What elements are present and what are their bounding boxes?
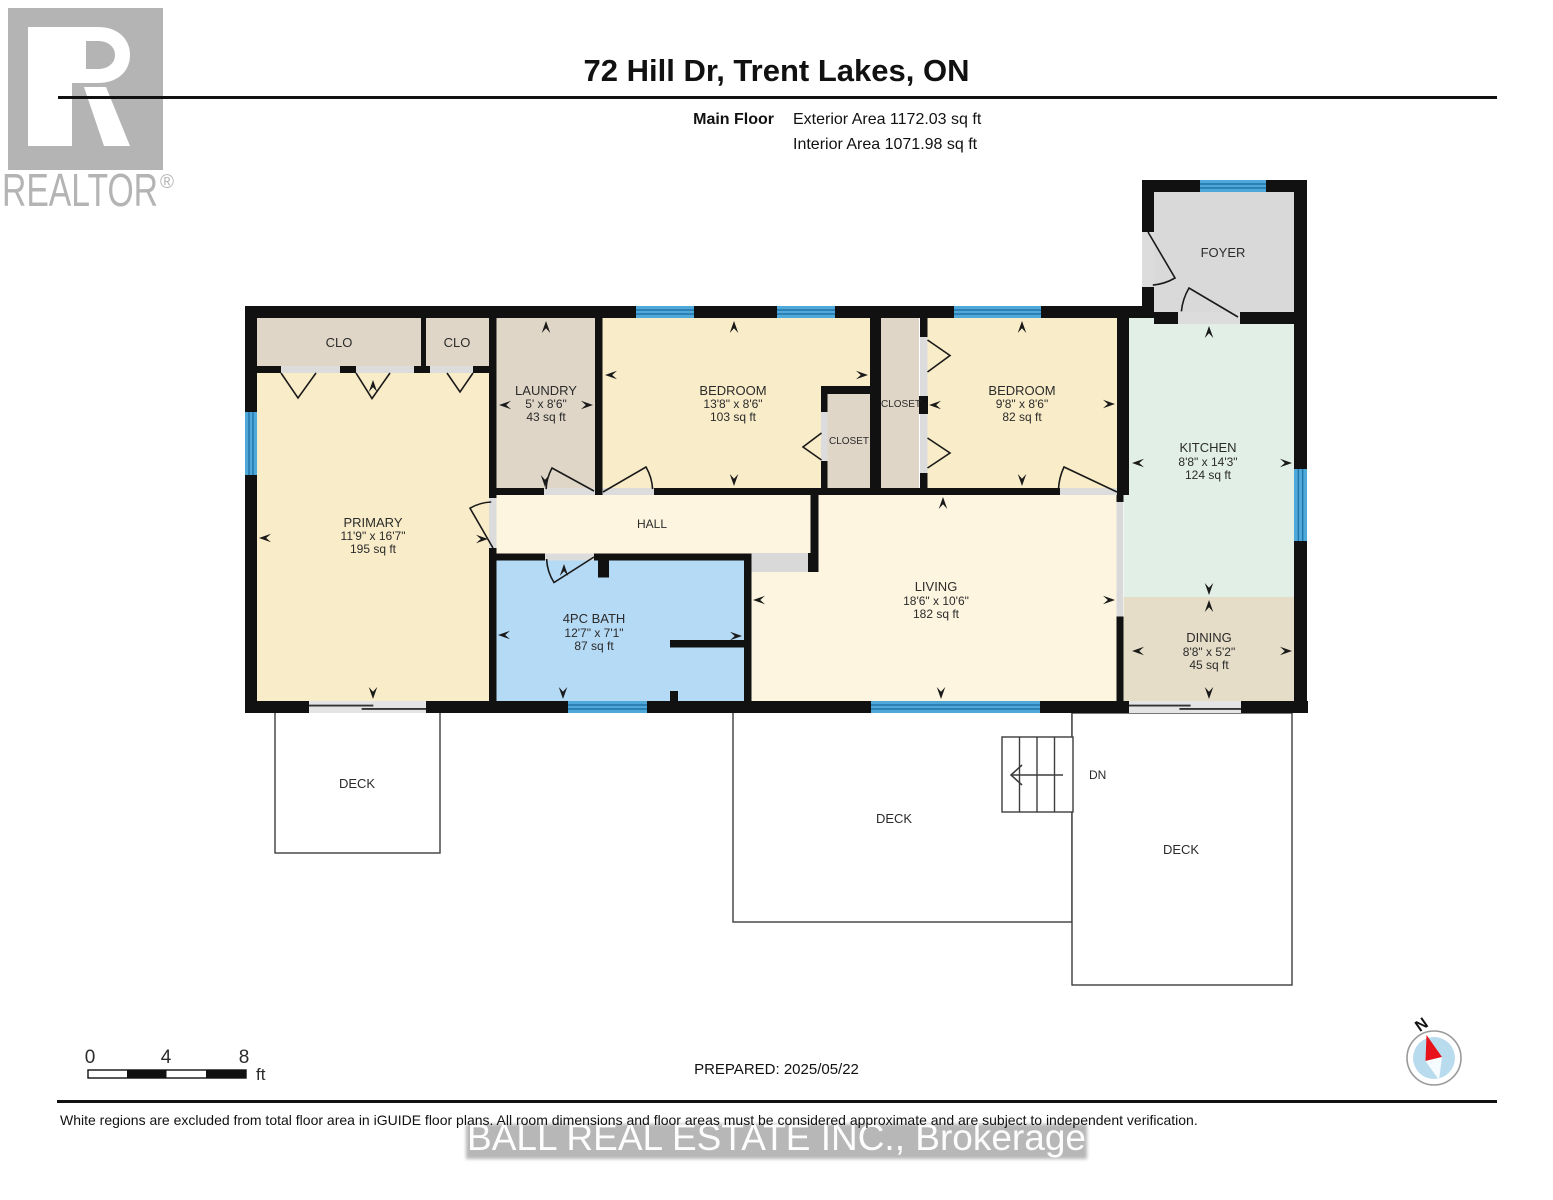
svg-text:45 sq ft: 45 sq ft [1189, 658, 1229, 672]
svg-text:103 sq ft: 103 sq ft [710, 410, 757, 424]
svg-text:LAUNDRY: LAUNDRY [515, 383, 577, 398]
svg-text:DN: DN [1089, 768, 1106, 782]
svg-text:195 sq ft: 195 sq ft [350, 542, 397, 556]
svg-text:CLOSET: CLOSET [829, 436, 869, 447]
svg-text:5' x 8'6": 5' x 8'6" [525, 397, 567, 411]
svg-text:PRIMARY: PRIMARY [344, 515, 403, 530]
svg-text:82 sq ft: 82 sq ft [1002, 410, 1042, 424]
svg-text:9'8" x 8'6": 9'8" x 8'6" [996, 397, 1048, 411]
svg-text:12'7" x 7'1": 12'7" x 7'1" [564, 626, 623, 640]
svg-text:DINING: DINING [1186, 630, 1232, 645]
svg-text:KITCHEN: KITCHEN [1179, 440, 1236, 455]
svg-text:18'6" x 10'6": 18'6" x 10'6" [903, 594, 969, 608]
svg-text:4PC BATH: 4PC BATH [563, 611, 626, 626]
svg-text:CLO: CLO [444, 335, 471, 350]
svg-text:FOYER: FOYER [1201, 245, 1246, 260]
svg-text:13'8" x 8'6": 13'8" x 8'6" [703, 397, 762, 411]
svg-text:BEDROOM: BEDROOM [699, 383, 766, 398]
svg-text:DECK: DECK [876, 811, 912, 826]
svg-text:HALL: HALL [637, 517, 667, 531]
svg-text:87 sq ft: 87 sq ft [574, 639, 614, 653]
svg-text:11'9" x 16'7": 11'9" x 16'7" [341, 529, 406, 543]
svg-text:BEDROOM: BEDROOM [988, 383, 1055, 398]
svg-text:CLOSET: CLOSET [881, 399, 921, 410]
svg-text:43 sq ft: 43 sq ft [526, 410, 566, 424]
svg-text:8'8" x 14'3": 8'8" x 14'3" [1178, 455, 1237, 469]
svg-text:DECK: DECK [1163, 842, 1199, 857]
svg-text:LIVING: LIVING [915, 579, 958, 594]
svg-text:DECK: DECK [339, 776, 375, 791]
svg-text:8'8" x 5'2": 8'8" x 5'2" [1183, 645, 1235, 659]
svg-text:124 sq ft: 124 sq ft [1185, 468, 1232, 482]
svg-text:CLO: CLO [326, 335, 353, 350]
svg-text:182 sq ft: 182 sq ft [913, 607, 960, 621]
